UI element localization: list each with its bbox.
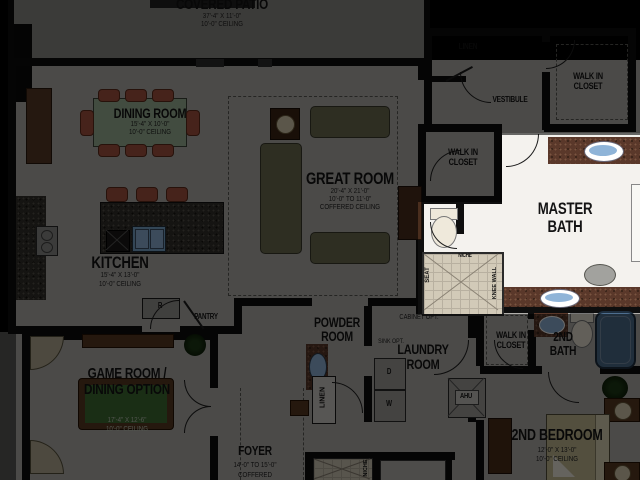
kitchen-ceiling: 10'-0" CEILING bbox=[63, 280, 178, 289]
nightstand-bottom bbox=[604, 462, 640, 480]
sink-opt-label: SINK OPT. bbox=[377, 338, 405, 345]
dining-chair bbox=[125, 89, 147, 102]
master-seat-label: SEAT bbox=[425, 263, 431, 287]
bedroom-plant bbox=[602, 376, 628, 400]
bar-stool bbox=[136, 187, 158, 202]
bar-stool bbox=[106, 187, 128, 202]
wall-bath-bedroom-1 bbox=[480, 366, 542, 374]
wall-hall-top-2 bbox=[368, 298, 424, 306]
wall-left bbox=[8, 58, 16, 334]
linen-hall-label: LINEN bbox=[320, 383, 327, 413]
shower-x-icon bbox=[424, 254, 498, 310]
sliding-door-panel bbox=[196, 59, 224, 67]
gameroom-console bbox=[82, 334, 174, 348]
wall-hall-right-1 bbox=[476, 313, 484, 366]
wall-patio-left bbox=[8, 0, 14, 62]
door-panel bbox=[258, 59, 272, 67]
dining-chair bbox=[98, 89, 120, 102]
linen-upper-label: LINEN bbox=[445, 42, 492, 51]
foyer-dims: 14'-0" TO 15'-0" bbox=[198, 461, 313, 470]
kitchen-sink bbox=[132, 226, 166, 252]
foyer-ceiling: COFFERED bbox=[198, 471, 313, 480]
wall-vest-bottom-2 bbox=[544, 124, 636, 132]
master-sink-top bbox=[584, 141, 624, 162]
second-bath-label: 2ND BATH bbox=[544, 330, 583, 357]
vestibule-label: VESTIBULE bbox=[479, 95, 541, 104]
dining-chair bbox=[152, 89, 174, 102]
wall-hall-right-2 bbox=[476, 420, 484, 480]
wall-gameroom-left bbox=[22, 332, 30, 480]
bath2-tub bbox=[595, 311, 636, 369]
refrigerator-label: R bbox=[144, 302, 175, 310]
wic-top-label: WALK IN CLOSET bbox=[566, 72, 610, 92]
dining-buffet bbox=[26, 88, 52, 164]
pantry-label: PANTRY bbox=[183, 313, 230, 321]
cabinet-opt-label: CABINET OPT. bbox=[382, 314, 456, 322]
double-oven bbox=[36, 226, 58, 256]
wic-bottom-label: WALK IN CLOSET bbox=[489, 331, 533, 351]
dryer-label: D bbox=[377, 368, 400, 376]
wall-pantry-right bbox=[234, 298, 242, 334]
game-room-label: GAME ROOM / DINING OPTION bbox=[76, 366, 177, 397]
wall-linen-left bbox=[424, 36, 432, 132]
cooktop-x-icon bbox=[106, 230, 128, 250]
master-niche-label: NICHE bbox=[446, 253, 485, 259]
wall-vest-wic-2 bbox=[542, 72, 550, 130]
wall-rightwing-top bbox=[424, 28, 636, 36]
second-bedroom-label: 2ND BEDROOM bbox=[495, 428, 620, 445]
wall-greatroom-right-1 bbox=[418, 66, 426, 80]
great-room-ceiling-type: COFFERED CEILING bbox=[293, 203, 408, 212]
wall-powder-laundry-1 bbox=[364, 306, 372, 346]
lower-tub-room bbox=[380, 460, 446, 480]
wall-lowershower-mid bbox=[372, 456, 380, 480]
foyer-table bbox=[290, 400, 309, 416]
lower-shower-x-icon bbox=[314, 459, 370, 479]
wall-vest-bottom-1 bbox=[424, 124, 502, 132]
laundry-room-label: LAUNDRY ROOM bbox=[388, 342, 458, 371]
ahu-label: AHU bbox=[452, 392, 480, 400]
master-window bbox=[631, 184, 640, 262]
wall-hall-top-1 bbox=[240, 298, 312, 306]
washer-label: W bbox=[377, 400, 400, 408]
master-sink-bottom bbox=[540, 289, 580, 308]
outside-top-right bbox=[430, 0, 640, 28]
game-room-ceiling: 10'-0" CEILING bbox=[70, 425, 185, 434]
covered-patio-ceiling: 10'-0" CEILING bbox=[165, 20, 280, 29]
dining-chair bbox=[98, 144, 120, 157]
dining-chair bbox=[152, 144, 174, 157]
vanity-stool bbox=[584, 264, 616, 286]
dining-chair bbox=[125, 144, 147, 157]
wall-gameroom-right-1 bbox=[210, 332, 218, 388]
wall-right-outer bbox=[628, 28, 636, 128]
sofa-bottom bbox=[310, 232, 390, 264]
wall-wicmid-right bbox=[494, 132, 502, 202]
wic-mid-label: WALK IN CLOSET bbox=[441, 148, 485, 168]
gameroom-plant bbox=[184, 334, 206, 356]
walkway-strip bbox=[0, 332, 16, 480]
niche-lower-label: NICHE bbox=[363, 454, 369, 480]
sofa-top bbox=[310, 106, 390, 138]
wall-powder-laundry-2 bbox=[364, 376, 372, 422]
wall-wicmid-bottom bbox=[422, 196, 502, 204]
side-table bbox=[270, 108, 300, 140]
master-bath-label: MASTER BATH bbox=[534, 200, 596, 235]
second-bedroom-ceiling: 10'-0" CEILING bbox=[500, 455, 615, 464]
dining-room-ceiling: 10'-0" CEILING bbox=[93, 128, 208, 137]
powder-room-label: POWDER ROOM bbox=[310, 316, 365, 344]
foyer-label: FOYER bbox=[208, 444, 302, 458]
knee-wall-label: KNEE WALL bbox=[492, 266, 498, 300]
floor-plan: COVERED PATIO 37'-4" X 11'-0" 10'-0" CEI… bbox=[0, 0, 640, 480]
bar-stool bbox=[166, 187, 188, 202]
